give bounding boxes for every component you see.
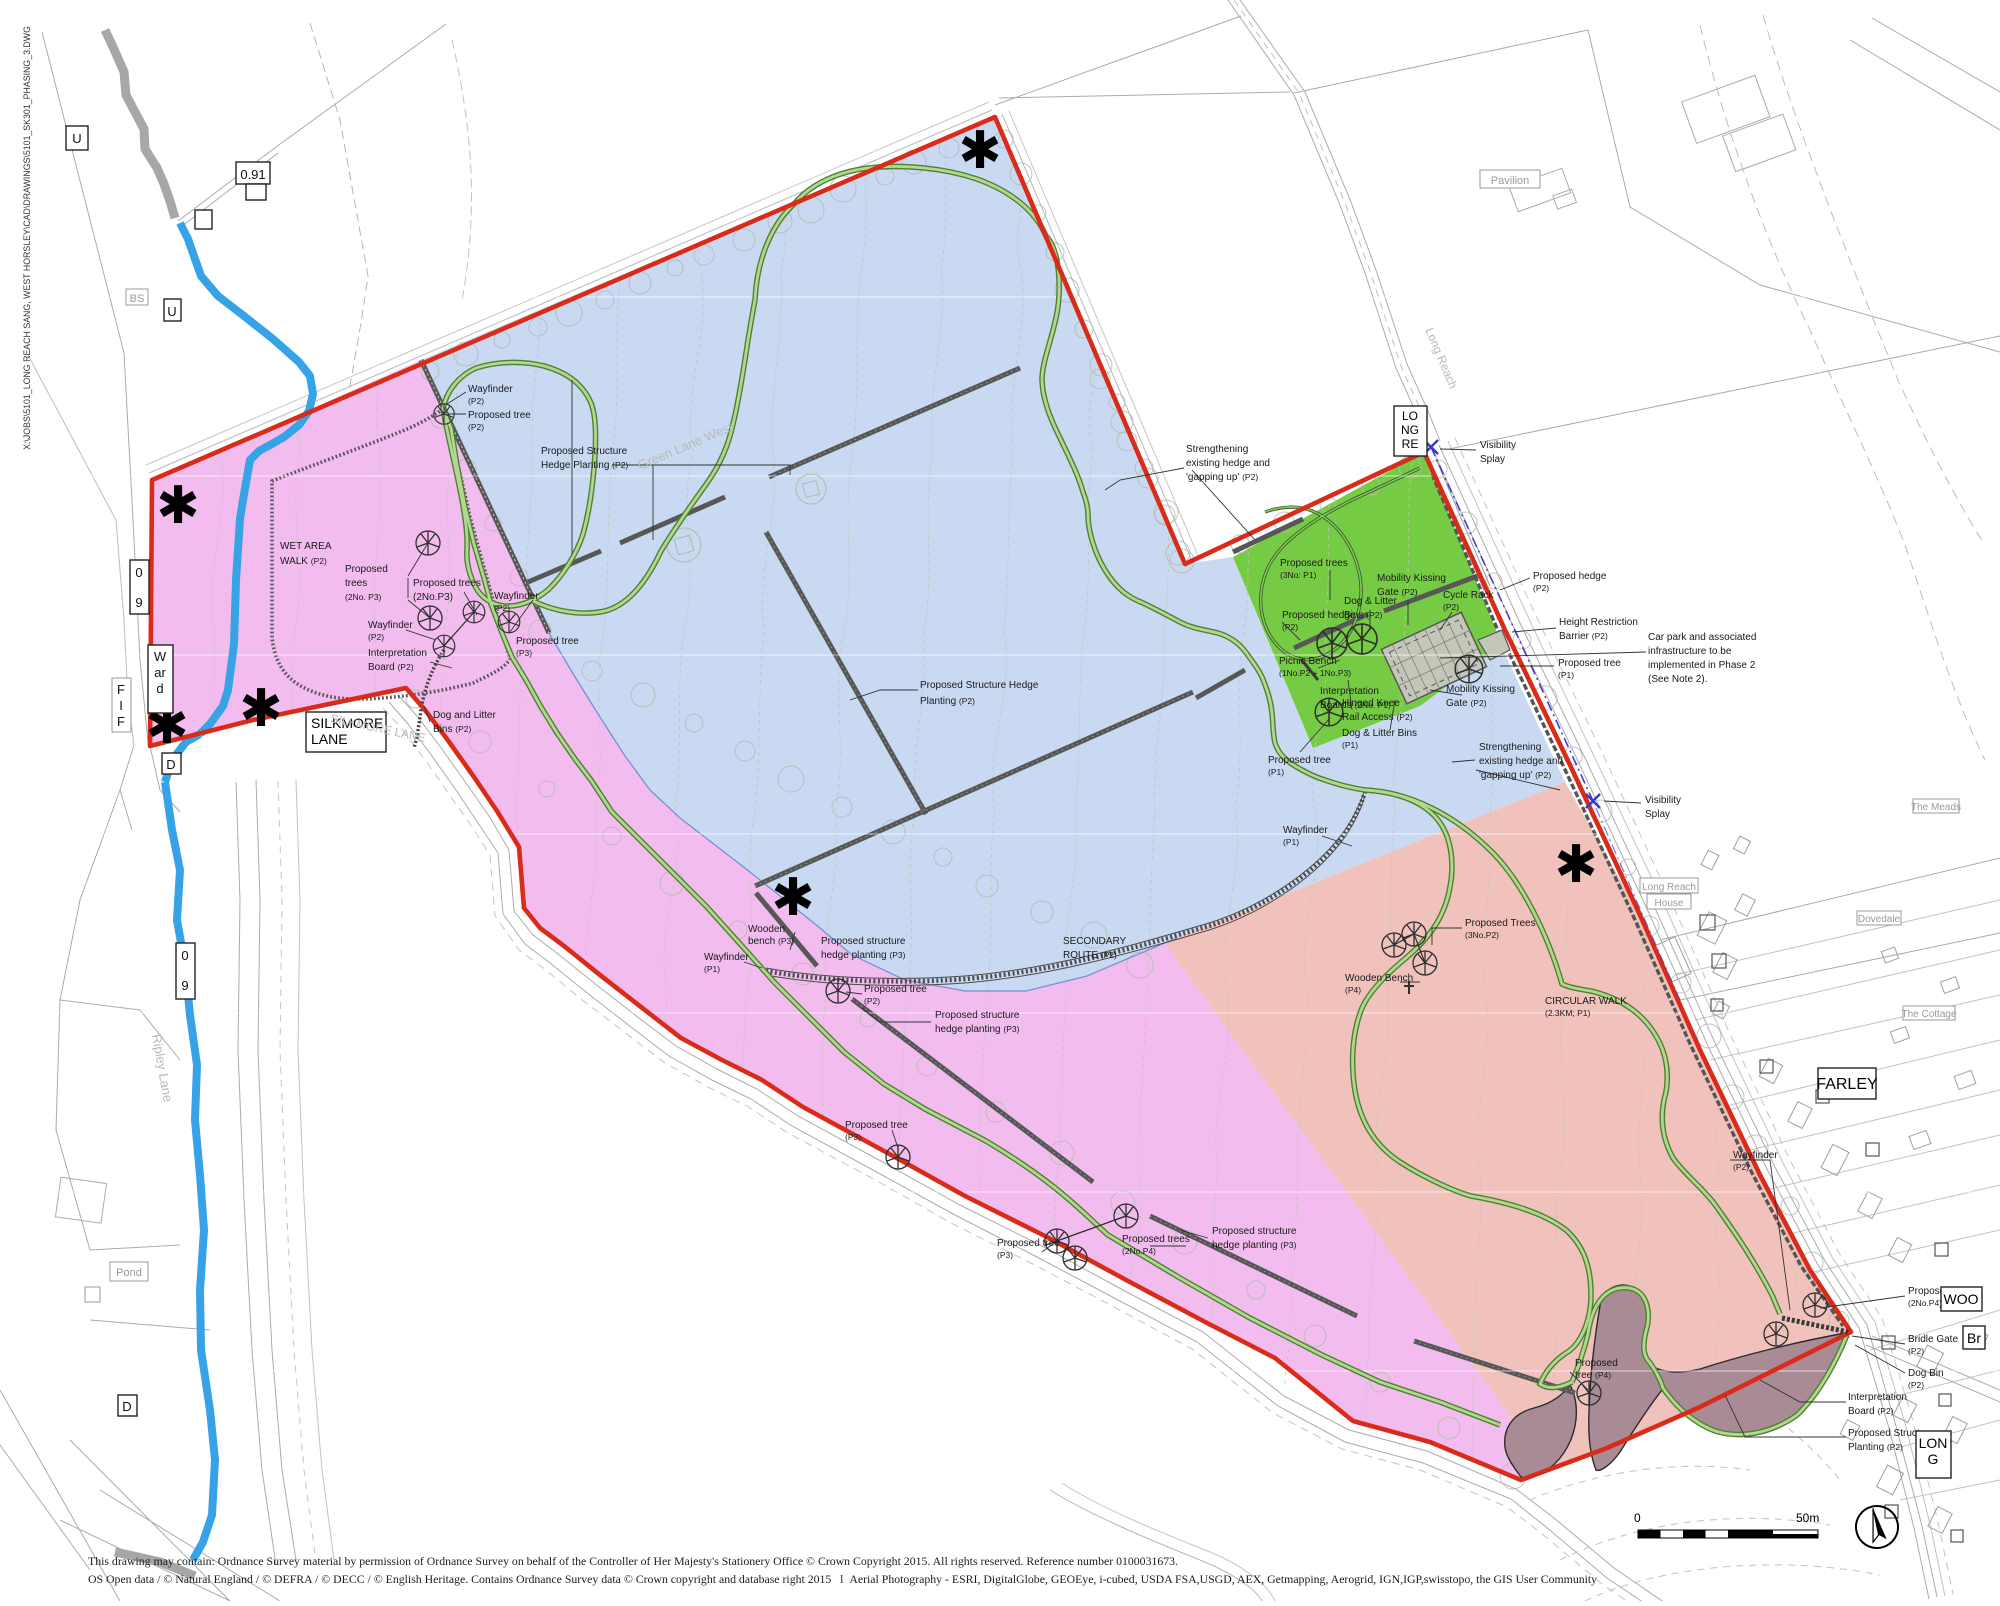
- svg-text:(1No.P2 + 1No.P3): (1No.P2 + 1No.P3): [1279, 668, 1351, 678]
- svg-text:Board (P2): Board (P2): [1848, 1406, 1894, 1417]
- svg-text:I: I: [119, 698, 123, 713]
- svg-text:Br: Br: [1967, 1330, 1981, 1346]
- svg-text:ROUTE (P2): ROUTE (P2): [1063, 950, 1117, 961]
- svg-text:9: 9: [181, 978, 188, 993]
- svg-text:Proposed hedge: Proposed hedge: [1533, 571, 1607, 582]
- svg-text:Interpretation: Interpretation: [1848, 1392, 1907, 1403]
- svg-text:9: 9: [135, 595, 142, 610]
- svg-text:Splay: Splay: [1480, 454, 1505, 465]
- svg-text:WET AREA: WET AREA: [280, 541, 332, 552]
- svg-text:(P2): (P2): [1908, 1380, 1924, 1390]
- svg-text:Rail Access (P2): Rail Access (P2): [1342, 712, 1413, 723]
- svg-text:Visibility: Visibility: [1480, 440, 1516, 451]
- svg-text:D: D: [122, 1399, 131, 1414]
- svg-text:0.91: 0.91: [240, 167, 265, 182]
- svg-text:Proposed tree: Proposed tree: [516, 636, 579, 647]
- svg-text:Proposed Structure: Proposed Structure: [541, 446, 628, 457]
- svg-text:existing hedge and: existing hedge and: [1479, 756, 1563, 767]
- svg-text:0: 0: [181, 948, 188, 963]
- svg-text:Barrier (P2): Barrier (P2): [1559, 631, 1608, 642]
- svg-text:(P2): (P2): [1908, 1346, 1924, 1356]
- svg-text:BS: BS: [130, 293, 145, 305]
- svg-text:'gapping up' (P2): 'gapping up' (P2): [1479, 770, 1551, 781]
- svg-text:CIRCULAR WALK: CIRCULAR WALK: [1545, 996, 1627, 1007]
- svg-text:Dog and Litter: Dog and Litter: [433, 710, 496, 721]
- svg-text:Wayfinder: Wayfinder: [1733, 1150, 1778, 1161]
- svg-text:Height Restriction: Height Restriction: [1559, 617, 1638, 628]
- svg-text:Planting (P2): Planting (P2): [1848, 1442, 1903, 1453]
- svg-text:Wooden Bench: Wooden Bench: [1345, 973, 1413, 984]
- svg-text:Proposed: Proposed: [1575, 1358, 1618, 1369]
- svg-text:Proposed trees: Proposed trees: [413, 578, 481, 589]
- svg-text:hedge planting (P3): hedge planting (P3): [935, 1024, 1020, 1035]
- svg-text:Dog & Litter Bins: Dog & Litter Bins: [1342, 728, 1417, 739]
- svg-text:F: F: [117, 682, 125, 697]
- svg-text:Dovedale: Dovedale: [1858, 914, 1901, 925]
- svg-text:Long Reach: Long Reach: [1642, 882, 1696, 893]
- svg-text:(P2): (P2): [368, 632, 384, 642]
- svg-text:(2No.P4): (2No.P4): [1908, 1298, 1942, 1308]
- svg-text:D: D: [166, 757, 175, 772]
- svg-text:WALK (P2): WALK (P2): [280, 556, 327, 567]
- svg-text:U: U: [167, 304, 176, 319]
- svg-text:0: 0: [1634, 1511, 1641, 1525]
- svg-text:(P1): (P1): [1268, 767, 1284, 777]
- svg-text:Wooden: Wooden: [748, 924, 785, 935]
- svg-text:hedge planting (P3): hedge planting (P3): [1212, 1240, 1297, 1251]
- svg-text:Strengthening: Strengthening: [1479, 742, 1541, 753]
- svg-text:Strengthening: Strengthening: [1186, 444, 1248, 455]
- svg-text:0: 0: [135, 565, 142, 580]
- svg-text:(P1): (P1): [704, 964, 720, 974]
- svg-text:Splay: Splay: [1645, 809, 1670, 820]
- svg-text:(P1): (P1): [1283, 837, 1299, 847]
- svg-text:OS Open data / © Natural Engla: OS Open data / © Natural England / © DEF…: [88, 1572, 1597, 1586]
- svg-text:✱: ✱: [1554, 836, 1598, 894]
- svg-text:Proposed structure: Proposed structure: [1212, 1226, 1297, 1237]
- svg-text:Wayfinder: Wayfinder: [704, 952, 749, 963]
- svg-text:Proposed tree: Proposed tree: [845, 1120, 908, 1131]
- svg-text:Proposed Trees: Proposed Trees: [1465, 918, 1536, 929]
- svg-text:Pond: Pond: [116, 1267, 142, 1279]
- svg-text:Proposed tree: Proposed tree: [1558, 658, 1621, 669]
- svg-text:Visibility: Visibility: [1645, 795, 1681, 806]
- svg-text:'gapping up' (P2): 'gapping up' (P2): [1186, 472, 1258, 483]
- svg-text:Dog & Litter: Dog & Litter: [1344, 596, 1397, 607]
- svg-text:(P1): (P1): [1342, 740, 1358, 750]
- svg-text:Proposed: Proposed: [345, 564, 388, 575]
- svg-text:X:\JOBS\5101_LONG REACH SANG,: X:\JOBS\5101_LONG REACH SANG, WEST HORSL…: [22, 26, 32, 450]
- svg-text:bench (P3): bench (P3): [748, 936, 794, 947]
- svg-text:Gate (P2): Gate (P2): [1446, 698, 1487, 709]
- svg-text:The Cottage: The Cottage: [1901, 1009, 1956, 1020]
- svg-text:Pavilion: Pavilion: [1491, 175, 1530, 187]
- svg-text:Bridle Gate: Bridle Gate: [1908, 1334, 1958, 1345]
- svg-text:The Meads: The Meads: [1911, 802, 1961, 813]
- svg-text:trees: trees: [345, 578, 367, 589]
- svg-text:Interpretation: Interpretation: [1320, 686, 1379, 697]
- svg-text:House: House: [1655, 898, 1684, 909]
- svg-text:Wayfinder: Wayfinder: [468, 384, 513, 395]
- svg-text:(P3): (P3): [516, 648, 532, 658]
- svg-text:(P2): (P2): [1733, 1162, 1749, 1172]
- svg-text:W: W: [154, 649, 167, 664]
- svg-text:Proposed tree: Proposed tree: [1268, 755, 1331, 766]
- svg-text:(P2): (P2): [1282, 622, 1298, 632]
- svg-text:Proposed trees: Proposed trees: [1280, 558, 1348, 569]
- svg-text:Picnic Bench: Picnic Bench: [1279, 656, 1337, 667]
- svg-text:(P2): (P2): [1533, 583, 1549, 593]
- svg-text:Proposed hedge: Proposed hedge: [1282, 610, 1356, 621]
- svg-text:Mobility Kissing: Mobility Kissing: [1446, 684, 1515, 695]
- svg-text:LO: LO: [1402, 409, 1418, 423]
- svg-text:(P3): (P3): [997, 1250, 1013, 1260]
- svg-text:Hedge Planting (P2): Hedge Planting (P2): [541, 460, 628, 471]
- svg-text:Wayfinder: Wayfinder: [1283, 825, 1328, 836]
- svg-text:G: G: [1928, 1451, 1939, 1467]
- svg-text:FARLEY: FARLEY: [1816, 1076, 1878, 1093]
- svg-text:Wayfinder: Wayfinder: [494, 591, 539, 602]
- svg-text:(3No.P2): (3No.P2): [1465, 930, 1499, 940]
- svg-text:RE: RE: [1402, 437, 1419, 451]
- svg-text:✱: ✱: [239, 680, 283, 738]
- svg-text:Proposed tree: Proposed tree: [997, 1238, 1060, 1249]
- svg-text:Proposed Structure Hedge: Proposed Structure Hedge: [920, 680, 1039, 691]
- svg-text:50m: 50m: [1796, 1511, 1819, 1525]
- svg-text:Proposed tree: Proposed tree: [864, 984, 927, 995]
- svg-text:✱: ✱: [771, 869, 815, 927]
- svg-text:(P4): (P4): [1345, 985, 1361, 995]
- svg-text:(P2): (P2): [494, 603, 510, 613]
- svg-text:This drawing may contain: Ordn: This drawing may contain: Ordnance Surve…: [88, 1554, 1178, 1568]
- svg-text:U: U: [72, 131, 81, 146]
- svg-text:Proposed trees: Proposed trees: [1122, 1234, 1190, 1245]
- svg-text:Wayfinder: Wayfinder: [368, 620, 413, 631]
- svg-text:NG: NG: [1401, 423, 1419, 437]
- svg-text:Planting (P2): Planting (P2): [920, 696, 975, 707]
- svg-text:Board (P2): Board (P2): [368, 662, 414, 673]
- svg-text:F: F: [117, 714, 125, 729]
- svg-text:Car park and associated: Car park and associated: [1648, 632, 1756, 643]
- svg-text:Proposed structure: Proposed structure: [935, 1010, 1020, 1021]
- svg-text:existing hedge and: existing hedge and: [1186, 458, 1270, 469]
- svg-text:(P2): (P2): [864, 996, 880, 1006]
- svg-text:tree (P4): tree (P4): [1575, 1370, 1611, 1381]
- svg-text:(See Note 2).: (See Note 2).: [1648, 674, 1707, 685]
- svg-text:hedge planting (P3): hedge planting (P3): [821, 950, 906, 961]
- svg-text:implemented in Phase 2: implemented in Phase 2: [1648, 660, 1756, 671]
- svg-text:d: d: [156, 681, 163, 696]
- svg-text:(2.3KM; P1): (2.3KM; P1): [1545, 1008, 1591, 1018]
- svg-text:Hinged Knee: Hinged Knee: [1342, 698, 1400, 709]
- svg-text:(P1): (P1): [1558, 670, 1574, 680]
- svg-text:(2No.P3): (2No.P3): [413, 592, 453, 603]
- svg-text:SECONDARY: SECONDARY: [1063, 936, 1126, 947]
- svg-text:(P3): (P3): [845, 1132, 861, 1142]
- svg-text:Cycle Rack: Cycle Rack: [1443, 590, 1495, 601]
- svg-text:✱: ✱: [156, 477, 200, 535]
- svg-text:infrastructure to be: infrastructure to be: [1648, 646, 1732, 657]
- svg-text:(2No.P4): (2No.P4): [1122, 1246, 1156, 1256]
- svg-text:Proposed structure: Proposed structure: [821, 936, 906, 947]
- svg-text:Bins (P2): Bins (P2): [433, 724, 471, 735]
- svg-text:Proposed tree: Proposed tree: [468, 410, 531, 421]
- svg-text:LON: LON: [1919, 1435, 1948, 1451]
- svg-text:Interpretation: Interpretation: [368, 648, 427, 659]
- svg-text:WOO: WOO: [1944, 1291, 1979, 1307]
- svg-text:(P2): (P2): [1443, 602, 1459, 612]
- svg-text:(2No. P3): (2No. P3): [345, 592, 382, 602]
- svg-text:ar: ar: [154, 665, 166, 680]
- svg-text:LANE: LANE: [311, 731, 348, 747]
- svg-text:(3No: P1): (3No: P1): [1280, 570, 1317, 580]
- svg-text:✱: ✱: [958, 122, 1002, 180]
- svg-text:Dog Bin: Dog Bin: [1908, 1368, 1944, 1379]
- svg-text:Mobility Kissing: Mobility Kissing: [1377, 573, 1446, 584]
- svg-text:(P2): (P2): [468, 422, 484, 432]
- svg-text:(P2): (P2): [468, 396, 484, 406]
